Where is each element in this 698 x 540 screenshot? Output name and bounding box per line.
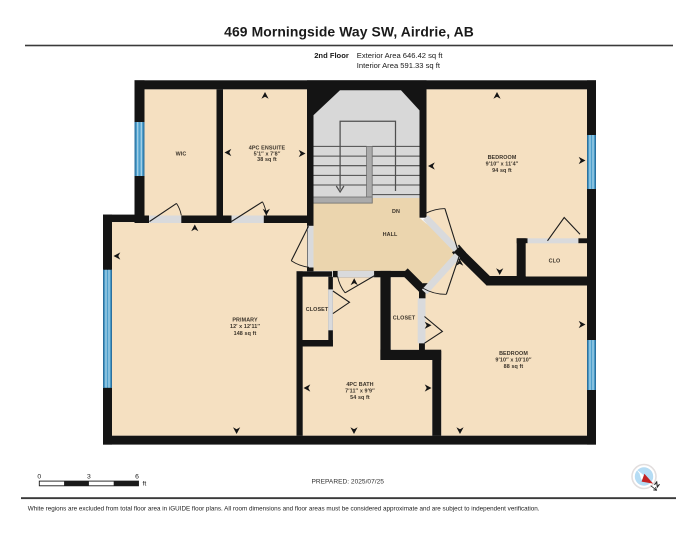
svg-text:4PC BATH: 4PC BATH	[346, 382, 373, 388]
svg-text:BEDROOM: BEDROOM	[488, 155, 517, 161]
svg-text:6: 6	[135, 474, 139, 481]
svg-text:7′11″ x 9′9″: 7′11″ x 9′9″	[345, 388, 375, 394]
svg-text:HALL: HALL	[383, 232, 398, 238]
svg-text:Exterior Area 646.42 sq ft: Exterior Area 646.42 sq ft	[357, 51, 444, 60]
svg-text:CLOSET: CLOSET	[393, 316, 416, 322]
svg-text:BEDROOM: BEDROOM	[499, 351, 528, 357]
svg-text:54 sq ft: 54 sq ft	[350, 395, 370, 401]
svg-text:White regions are excluded fro: White regions are excluded from total fl…	[28, 505, 540, 512]
svg-text:PRIMARY: PRIMARY	[232, 318, 258, 324]
svg-text:3: 3	[87, 474, 91, 481]
svg-text:9′10″ x 10′10″: 9′10″ x 10′10″	[495, 358, 531, 364]
svg-text:CLOSET: CLOSET	[306, 307, 329, 313]
svg-text:0: 0	[37, 474, 41, 481]
svg-text:469 Morningside Way SW, Airdri: 469 Morningside Way SW, Airdrie, AB	[224, 24, 474, 40]
svg-text:12′ x 12′11″: 12′ x 12′11″	[230, 324, 260, 330]
svg-text:94 sq ft: 94 sq ft	[492, 168, 512, 174]
svg-text:ft: ft	[143, 481, 147, 488]
svg-text:9′10″ x 11′4″: 9′10″ x 11′4″	[486, 162, 519, 168]
svg-text:WIC: WIC	[176, 152, 187, 158]
svg-text:88 sq ft: 88 sq ft	[504, 364, 524, 370]
svg-text:148 sq ft: 148 sq ft	[234, 331, 257, 337]
svg-text:PREPARED: 2025/07/25: PREPARED: 2025/07/25	[311, 479, 384, 486]
svg-text:CLO: CLO	[549, 259, 561, 265]
svg-text:2nd Floor: 2nd Floor	[314, 51, 349, 60]
svg-text:Interior Area 591.33 sq ft: Interior Area 591.33 sq ft	[357, 61, 441, 70]
svg-text:DN: DN	[392, 209, 400, 215]
svg-text:38 sq ft: 38 sq ft	[257, 157, 277, 163]
